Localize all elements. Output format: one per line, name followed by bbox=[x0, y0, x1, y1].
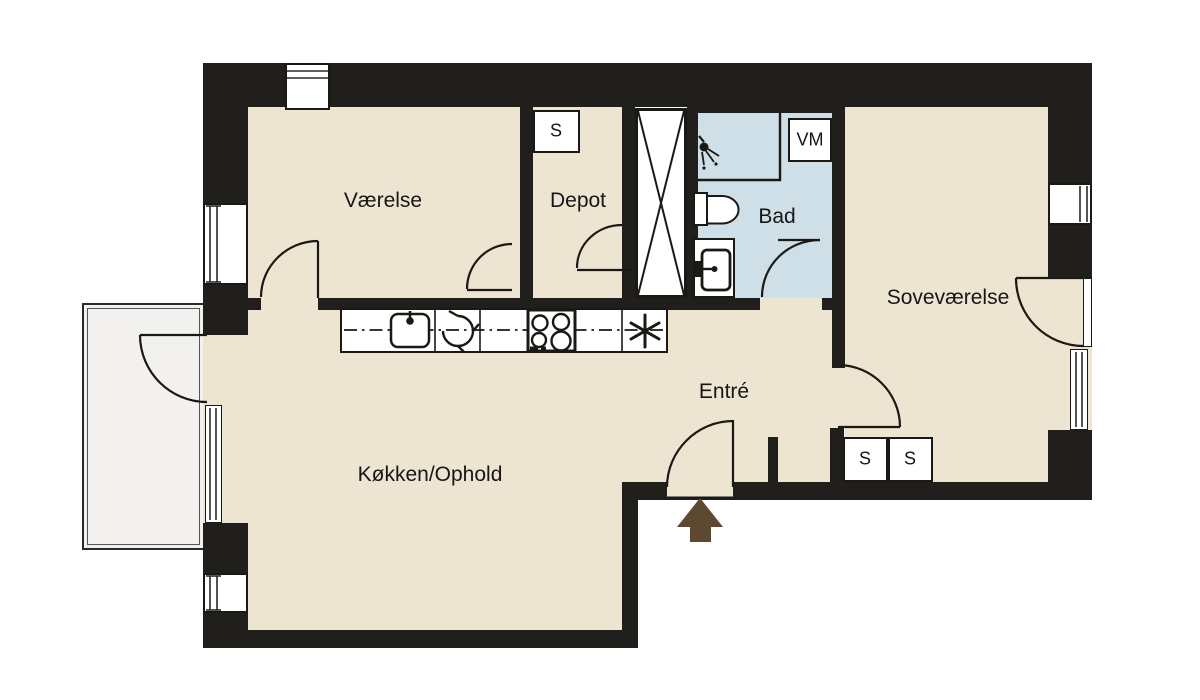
door-sovevaerelse-balcony bbox=[1016, 278, 1084, 346]
label-bad: Bad bbox=[758, 205, 795, 229]
kitchen-sink-icon bbox=[391, 311, 429, 347]
dishwasher-swirl-icon bbox=[443, 311, 479, 352]
label-depot: Depot bbox=[550, 189, 606, 213]
entrance-arrow-icon bbox=[677, 498, 723, 542]
floor-plan: Værelse Depot Bad Soveværelse Entré Køkk… bbox=[0, 0, 1200, 700]
shower-icon bbox=[699, 136, 719, 170]
plan-symbols-layer bbox=[0, 0, 1200, 700]
label-washing-machine: VM bbox=[797, 130, 824, 151]
label-kokken-ophold: Køkken/Ophold bbox=[358, 463, 503, 487]
door-depot bbox=[577, 225, 632, 270]
door-sovevaerelse bbox=[838, 365, 900, 427]
door-entrance bbox=[667, 420, 733, 487]
label-closet-depot: S bbox=[550, 121, 562, 142]
door-bad bbox=[762, 240, 820, 297]
bathroom-sink-icon bbox=[694, 250, 730, 290]
shaft-x-icon bbox=[638, 111, 684, 295]
door-vaerelse-right bbox=[467, 244, 512, 290]
door-vaerelse-left bbox=[261, 241, 318, 298]
door-balcony bbox=[140, 335, 207, 402]
label-entre: Entré bbox=[699, 380, 749, 404]
label-sovevaerelse: Soveværelse bbox=[887, 286, 1010, 310]
shower-zone bbox=[698, 113, 780, 180]
toilet-icon bbox=[694, 193, 739, 225]
label-closet-bedroom-2: S bbox=[904, 449, 916, 470]
freezer-asterisk-icon bbox=[631, 315, 659, 347]
label-vaerelse: Værelse bbox=[344, 189, 422, 213]
stove-icon bbox=[528, 310, 575, 351]
label-closet-bedroom-1: S bbox=[859, 449, 871, 470]
